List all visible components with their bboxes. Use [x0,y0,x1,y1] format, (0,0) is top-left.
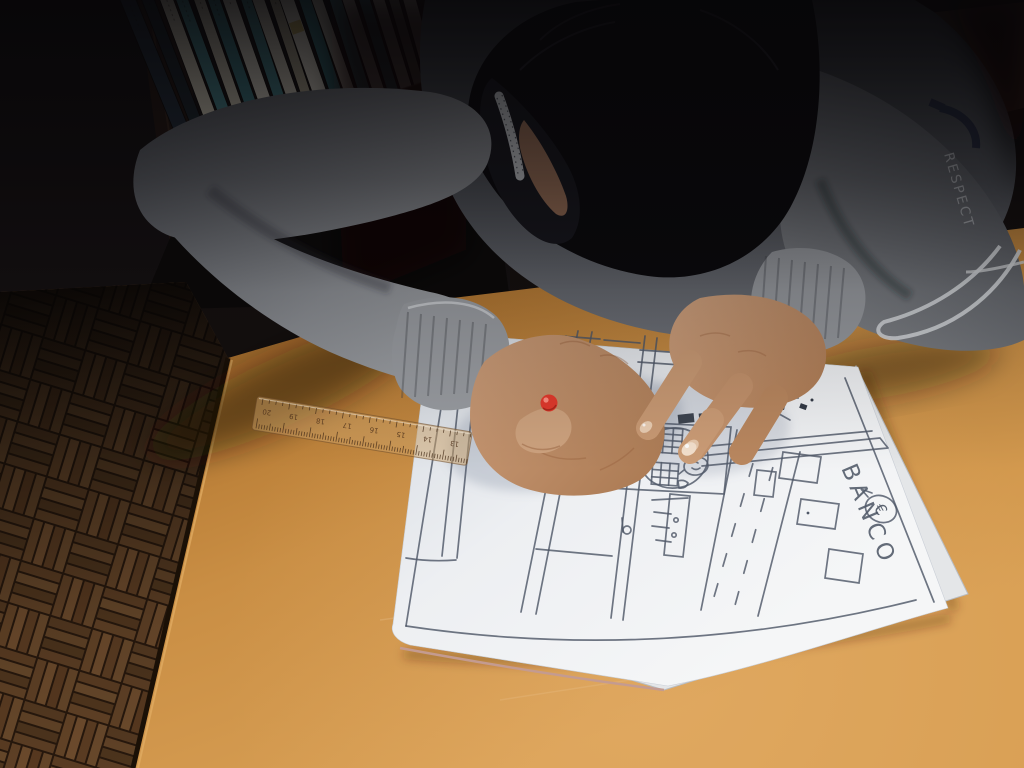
ambient-top-darkness [0,0,1024,470]
photo-recreation: BANCO € [0,0,1024,768]
door-knob-dot [807,512,810,515]
